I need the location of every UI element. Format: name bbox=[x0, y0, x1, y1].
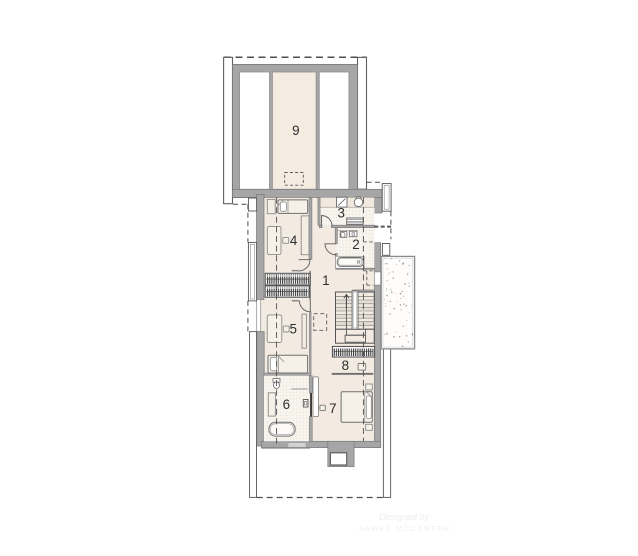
svg-text:4: 4 bbox=[290, 233, 298, 248]
svg-text:JAMES MCCARTER: JAMES MCCARTER bbox=[359, 524, 451, 533]
svg-text:9: 9 bbox=[292, 123, 299, 138]
svg-text:8: 8 bbox=[342, 358, 349, 373]
svg-text:3: 3 bbox=[337, 205, 344, 220]
svg-text:Designed by: Designed by bbox=[379, 512, 430, 522]
svg-text:6: 6 bbox=[283, 397, 290, 412]
svg-text:2: 2 bbox=[352, 237, 359, 252]
svg-text:1: 1 bbox=[322, 273, 329, 288]
svg-text:7: 7 bbox=[329, 401, 336, 416]
svg-text:5: 5 bbox=[289, 322, 296, 337]
